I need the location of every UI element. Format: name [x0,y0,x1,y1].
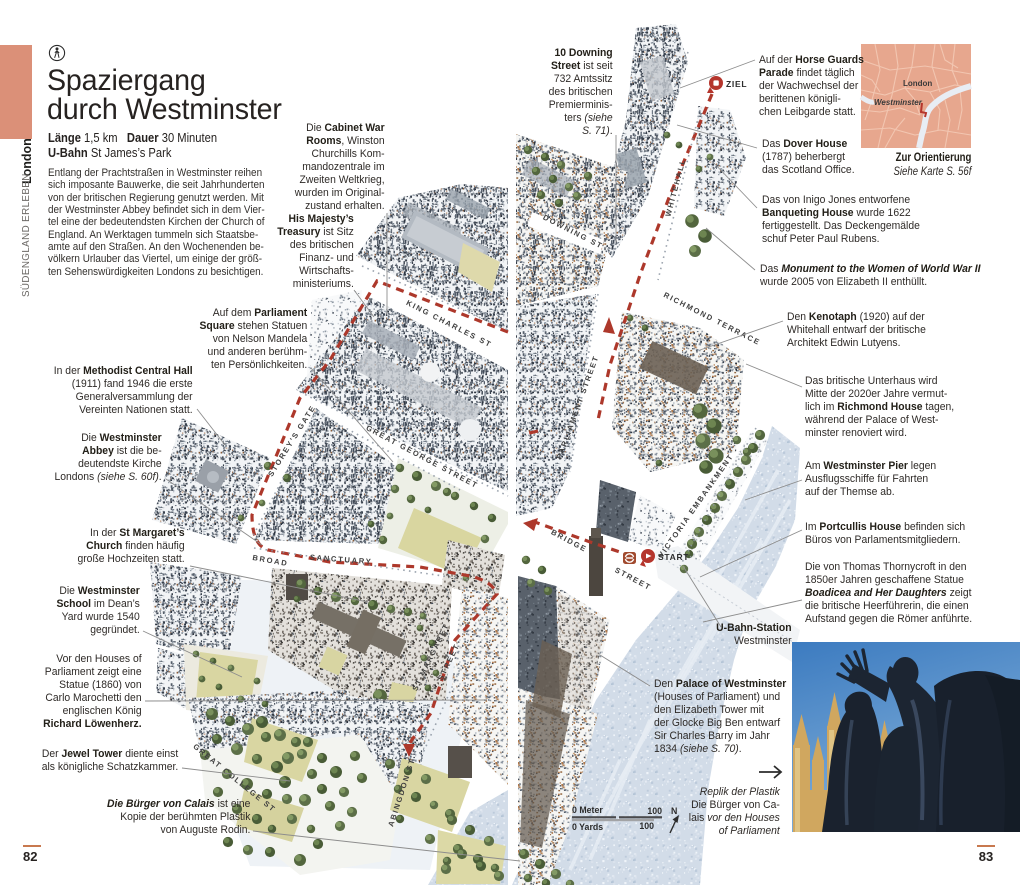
svg-text:0 Meter: 0 Meter [572,805,603,815]
svg-text:STREET: STREET [613,565,653,592]
svg-text:START: START [658,552,689,562]
svg-text:Westminster: Westminster [874,98,923,107]
svg-text:BROAD: BROAD [252,553,289,568]
svg-text:N: N [671,806,677,816]
svg-text:WHITEHALL: WHITEHALL [663,157,687,217]
svg-text:BRIDGE: BRIDGE [550,527,589,554]
svg-text:100: 100 [639,821,654,831]
svg-text:100: 100 [647,806,662,816]
svg-text:London: London [903,79,932,88]
svg-text:ZIEL: ZIEL [726,79,747,89]
svg-text:0 Yards: 0 Yards [572,822,603,832]
